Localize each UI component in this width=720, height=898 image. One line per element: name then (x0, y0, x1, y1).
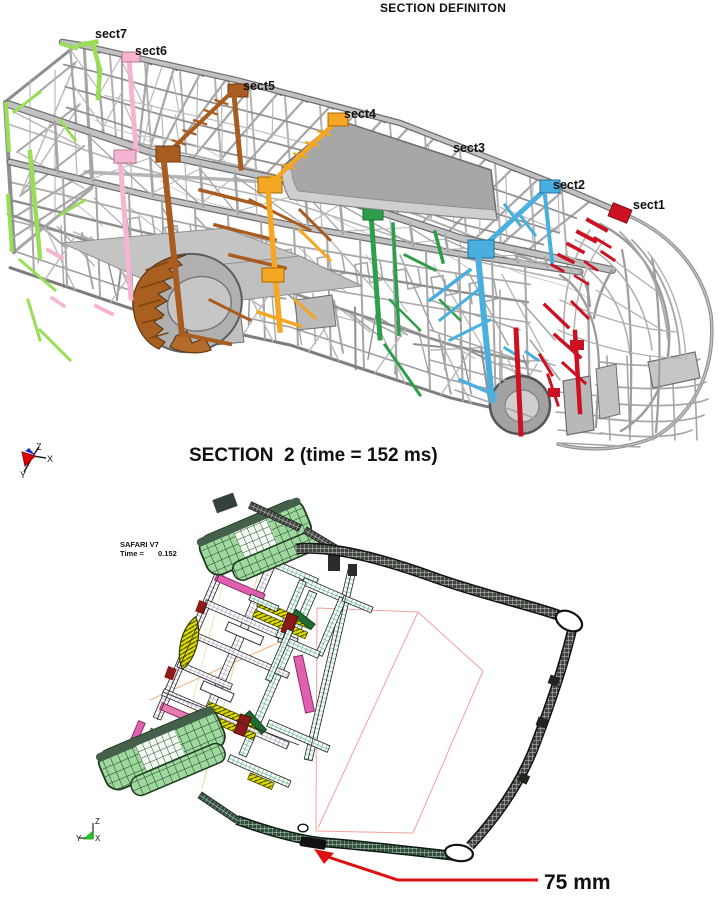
svg-text:sect4: sect4 (344, 107, 376, 121)
svg-text:Time =: Time = (120, 549, 144, 558)
svg-text:0.152: 0.152 (158, 549, 177, 558)
svg-text:SECTION 2 (time = 152 ms): SECTION 2 (time = 152 ms) (189, 445, 438, 466)
svg-text:sect7: sect7 (95, 27, 127, 41)
svg-text:Y: Y (20, 470, 26, 480)
svg-text:sect6: sect6 (135, 44, 167, 58)
svg-text:Z: Z (95, 817, 100, 826)
svg-text:Y: Y (76, 834, 82, 843)
svg-text:sect3: sect3 (453, 141, 485, 155)
svg-text:X: X (47, 454, 53, 464)
svg-text:SECTION DEFINITON: SECTION DEFINITON (380, 1, 506, 15)
svg-text:75 mm: 75 mm (544, 871, 611, 894)
svg-text:Z: Z (36, 442, 42, 452)
svg-text:SAFARI V7: SAFARI V7 (120, 540, 159, 549)
svg-text:X: X (95, 834, 101, 843)
svg-text:sect2: sect2 (553, 178, 585, 192)
svg-text:sect1: sect1 (633, 198, 665, 212)
svg-text:sect5: sect5 (243, 79, 275, 93)
